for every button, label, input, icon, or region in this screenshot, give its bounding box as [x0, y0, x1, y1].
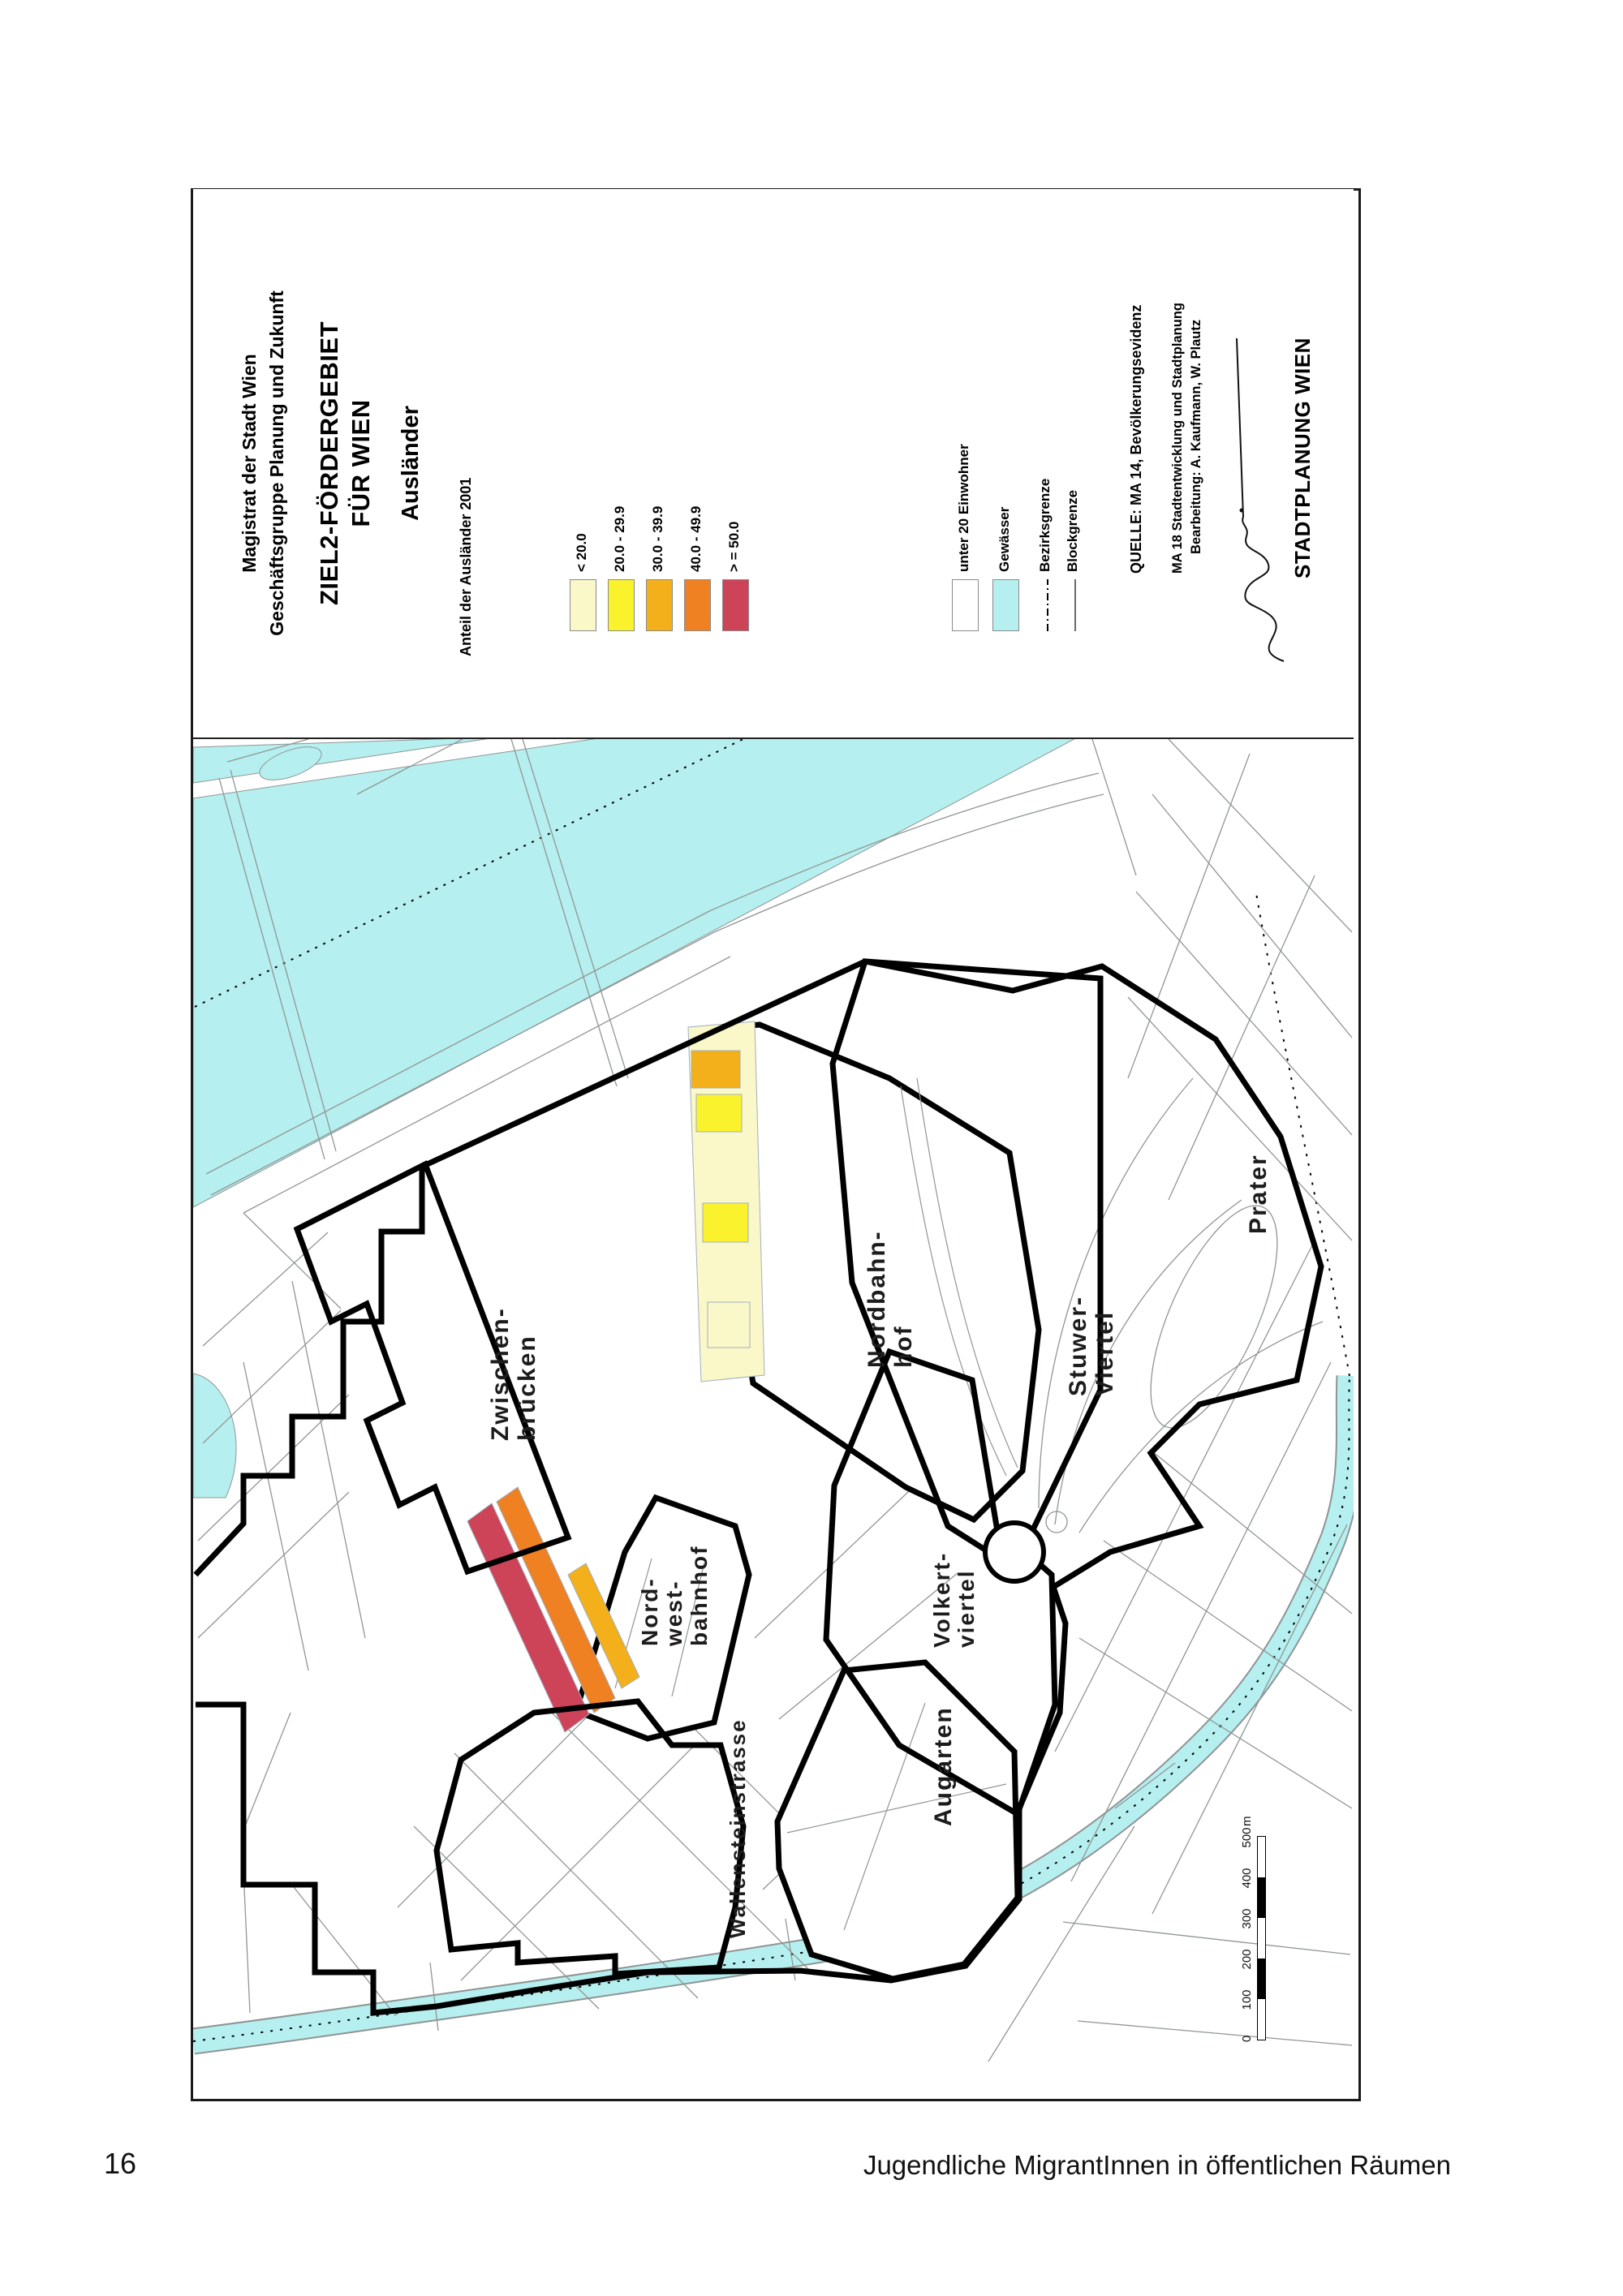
org-line2: Geschäftsgruppe Planung und Zukunft — [266, 189, 288, 737]
legend-class-row: 20.0 - 29.9 — [608, 189, 634, 737]
label-prater: Prater — [1191, 1150, 1325, 1234]
legend-swatch — [646, 579, 673, 631]
scale-tick: 200 — [1240, 1949, 1254, 1969]
legend-swatch — [684, 579, 711, 631]
legend-class-label: < 20.0 — [574, 533, 590, 572]
legend-area-row: unter 20 Einwohner — [952, 189, 978, 737]
legend-area-label: unter 20 Einwohner — [956, 444, 972, 572]
legend-class-label: 30.0 - 39.9 — [650, 506, 666, 572]
legend-class-label: > = 50.0 — [726, 522, 743, 572]
bezirksgrenze-symbol — [1045, 579, 1050, 631]
legend-swatch — [722, 579, 749, 631]
legend-class-label: 20.0 - 29.9 — [612, 506, 628, 572]
legend-class-row: 30.0 - 39.9 — [646, 189, 672, 737]
scale-unit: m — [1240, 1817, 1254, 1827]
page-number: 16 — [104, 2147, 136, 2181]
source-line: Bearbeitung: A. Kaufmann, W. Plautz — [1189, 320, 1204, 554]
legend-class-row: < 20.0 — [570, 189, 596, 737]
scale-tick: 300 — [1240, 1908, 1254, 1928]
label-zwischenbruecken: Zwischen-brücken — [433, 1307, 594, 1441]
legend-scale-title: Anteil der Ausländer 2001 — [458, 478, 475, 656]
legend-area-row: Gewässer — [992, 189, 1018, 737]
legend-swatch — [952, 579, 979, 631]
source-line: MA 18 Stadtentwicklung und Stadtplanung — [1170, 303, 1186, 574]
figure-subtitle: Ausländer — [398, 189, 424, 737]
scale-tick: 0 — [1240, 2036, 1254, 2042]
figure-title-line2: FÜR WIEN — [347, 189, 376, 737]
document-page: Zwischen-brücken Nord-west-bahnhof Walle… — [0, 0, 1623, 2296]
label-wallensteinstrasse: Wallensteinstrasse — [680, 1718, 796, 1938]
rotated-map-sheet: Zwischen-brücken Nord-west-bahnhof Walle… — [193, 191, 1354, 2094]
source-line: QUELLE: MA 14, Bevölkerungsevidenz — [1128, 305, 1145, 574]
legend-swatch — [608, 579, 635, 631]
label-nordbahnhof: Nordbahn-hof — [810, 1230, 971, 1368]
legend-line-label: Bezirksgrenze — [1037, 479, 1053, 572]
label-augarten: Augarten — [876, 1706, 1010, 1826]
legend-line-row: Blockgrenze — [1065, 189, 1086, 737]
legend-swatch — [570, 579, 596, 631]
legend-line-row: Bezirksgrenze — [1037, 189, 1058, 737]
blockgrenze-symbol — [1073, 579, 1078, 631]
scale-tick: 500 — [1240, 1827, 1254, 1847]
scale-tick: 400 — [1240, 1868, 1254, 1888]
scale-bar: 0 100 200 300 400 500 m — [1240, 1781, 1277, 2040]
nordbahnhof-edge-strip — [688, 1021, 764, 1382]
legend-area-label: Gewässer — [997, 507, 1013, 572]
legend-line-label: Blockgrenze — [1065, 490, 1081, 572]
label-stuwerviertel: Stuwer-Viertel — [1011, 1296, 1172, 1396]
scale-bar-strip — [1257, 1836, 1266, 2040]
legend-swatch — [992, 579, 1019, 631]
legend-class-row: 40.0 - 49.9 — [684, 189, 710, 737]
scale-tick: 100 — [1240, 1989, 1254, 2010]
label-nordwestbahnhof: Nord-west-bahnhof — [588, 1546, 763, 1646]
agency-name: STADTPLANUNG WIEN — [1290, 338, 1315, 578]
legend-class-row: > = 50.0 — [722, 189, 748, 737]
map-figure-frame: Zwischen-brücken Nord-west-bahnhof Walle… — [191, 188, 1361, 2101]
footer-running-title: Jugendliche MigrantInnen in öffentlichen… — [863, 2150, 1451, 2181]
legend-class-label: 40.0 - 49.9 — [688, 506, 704, 572]
signature-squiggle — [1233, 320, 1292, 669]
legend-panel: Magistrat der Stadt Wien Geschäftsgruppe… — [193, 189, 1354, 739]
label-volkertviertel: Volkert-viertel — [880, 1552, 1030, 1648]
org-line1: Magistrat der Stadt Wien — [239, 189, 260, 737]
map-area: Zwischen-brücken Nord-west-bahnhof Walle… — [193, 739, 1354, 2094]
figure-title-line1: ZIEL2-FÖRDERGEBIET — [315, 189, 344, 737]
